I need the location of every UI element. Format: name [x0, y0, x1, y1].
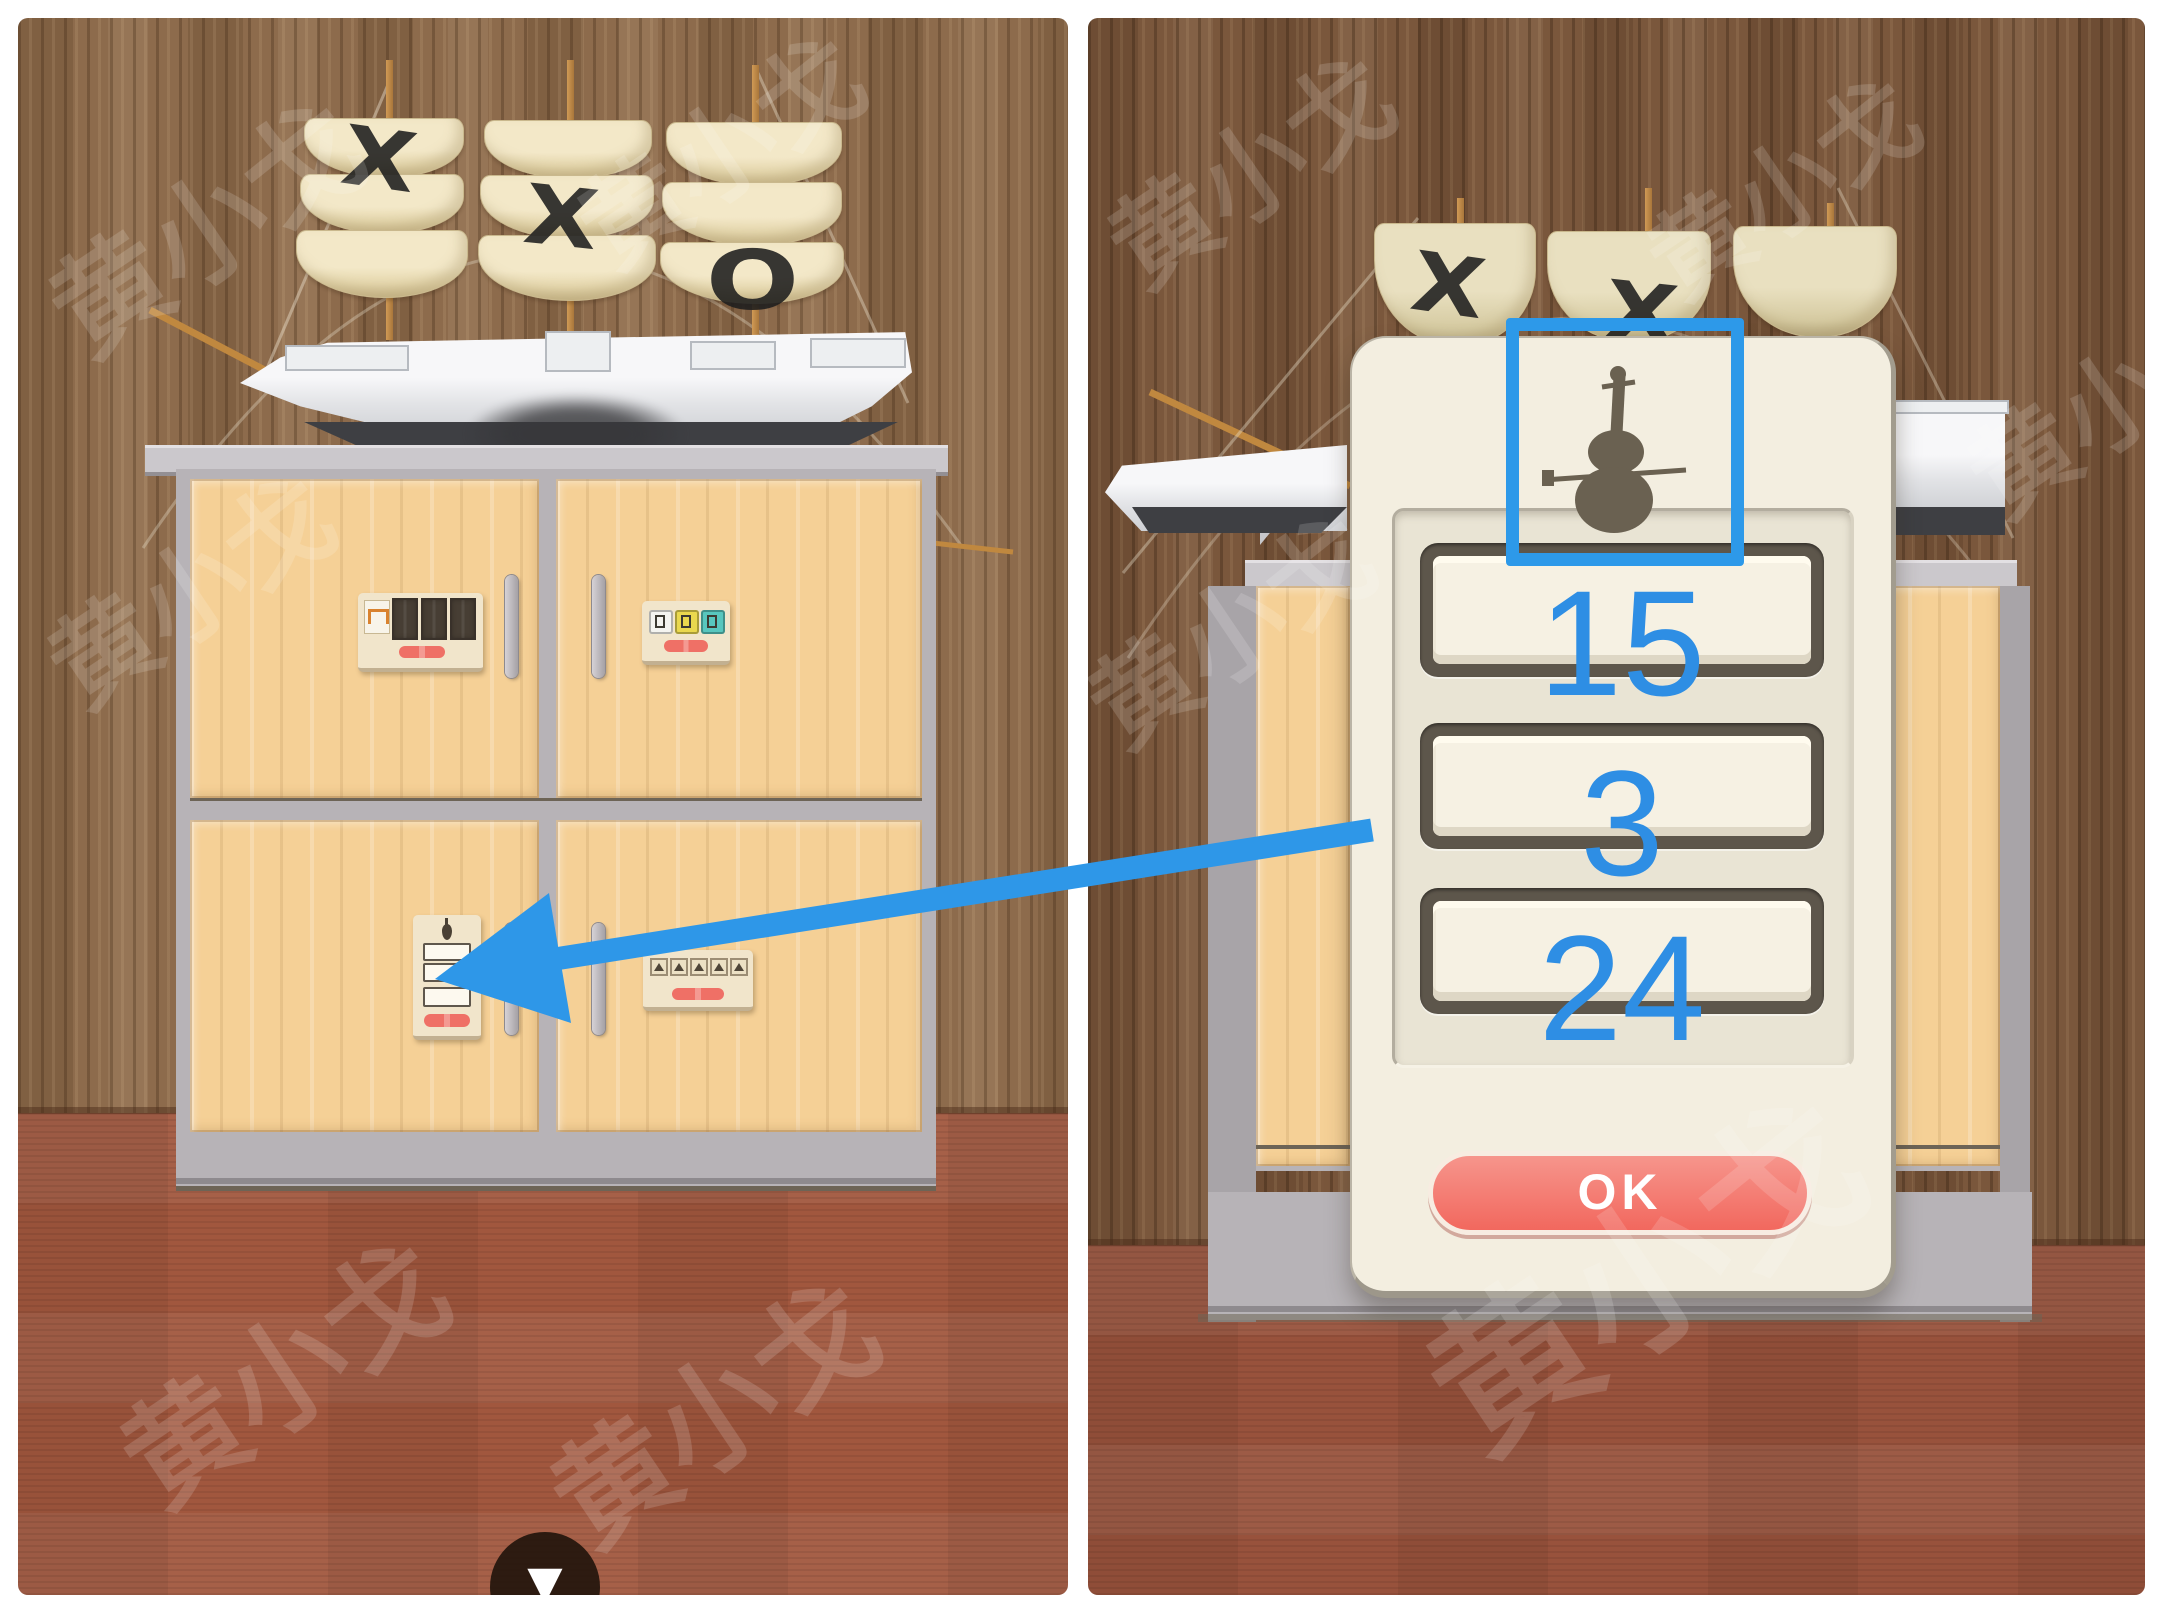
down-arrow-icon: ▼ [515, 1549, 574, 1595]
annotation-number-2: 3 [1420, 745, 1824, 903]
confirm-button[interactable] [664, 640, 708, 652]
color-buttons-lock[interactable] [642, 601, 730, 665]
keypad-symbol-cell [364, 600, 390, 634]
annotation-number-1: 15 [1420, 565, 1824, 723]
up-arrow-icon [714, 963, 724, 971]
white-button[interactable] [649, 610, 673, 634]
up-arrow-button[interactable] [690, 958, 708, 976]
arrow-buttons-lock[interactable] [643, 950, 753, 1011]
up-arrow-icon [654, 963, 664, 971]
digit-cell[interactable] [392, 598, 418, 640]
deck-railing [690, 341, 776, 370]
up-arrow-button[interactable] [650, 958, 668, 976]
digit-cell[interactable] [421, 598, 447, 640]
door-handle[interactable] [505, 575, 518, 678]
deck-railing [285, 345, 409, 371]
deck-railing [810, 338, 906, 368]
door-handle[interactable] [505, 923, 518, 1035]
violin-code-lock[interactable] [413, 915, 481, 1040]
frame-panel-divider [1068, 0, 1088, 1620]
up-arrow-icon [694, 963, 704, 971]
code-field-1[interactable] [423, 943, 471, 961]
sail-mark-o: O [706, 233, 800, 329]
confirm-button[interactable] [672, 988, 724, 1000]
code-field-2[interactable] [423, 963, 471, 982]
confirm-button[interactable] [424, 1014, 470, 1027]
teal-button[interactable] [701, 610, 725, 634]
button-glyph [655, 615, 665, 628]
frame-border-right [2145, 0, 2160, 1620]
up-arrow-button[interactable] [730, 958, 748, 976]
button-glyph [707, 615, 717, 628]
confirm-button[interactable] [399, 646, 445, 658]
up-arrow-button[interactable] [710, 958, 728, 976]
sail-mark-x: X [1405, 234, 1490, 338]
violin-icon [442, 924, 452, 940]
code-field-3[interactable] [423, 987, 471, 1007]
up-arrow-icon [734, 963, 744, 971]
up-arrow-button[interactable] [670, 958, 688, 976]
door-handle[interactable] [592, 575, 605, 678]
cabinet-ground-line [176, 1186, 936, 1191]
frame-border-left [0, 0, 18, 1620]
up-arrow-icon [674, 963, 684, 971]
screenshot-stage: X X O [0, 0, 2160, 1620]
cabinet-base-edge [176, 1178, 936, 1184]
cabinet-divider-line [190, 798, 922, 801]
cabinet-door-top-right[interactable] [556, 479, 922, 798]
deck-cabin [545, 331, 611, 372]
door-handle[interactable] [592, 923, 605, 1035]
cabinet-door-bottom-left[interactable] [190, 820, 539, 1132]
violin-icon [1540, 360, 1690, 555]
table-icon [368, 609, 389, 624]
cabinet-divider-line [1256, 1145, 1350, 1149]
digit-cell[interactable] [450, 598, 476, 640]
button-glyph [681, 615, 691, 628]
digit-keypad-lock[interactable] [358, 593, 483, 672]
yellow-button[interactable] [675, 610, 699, 634]
